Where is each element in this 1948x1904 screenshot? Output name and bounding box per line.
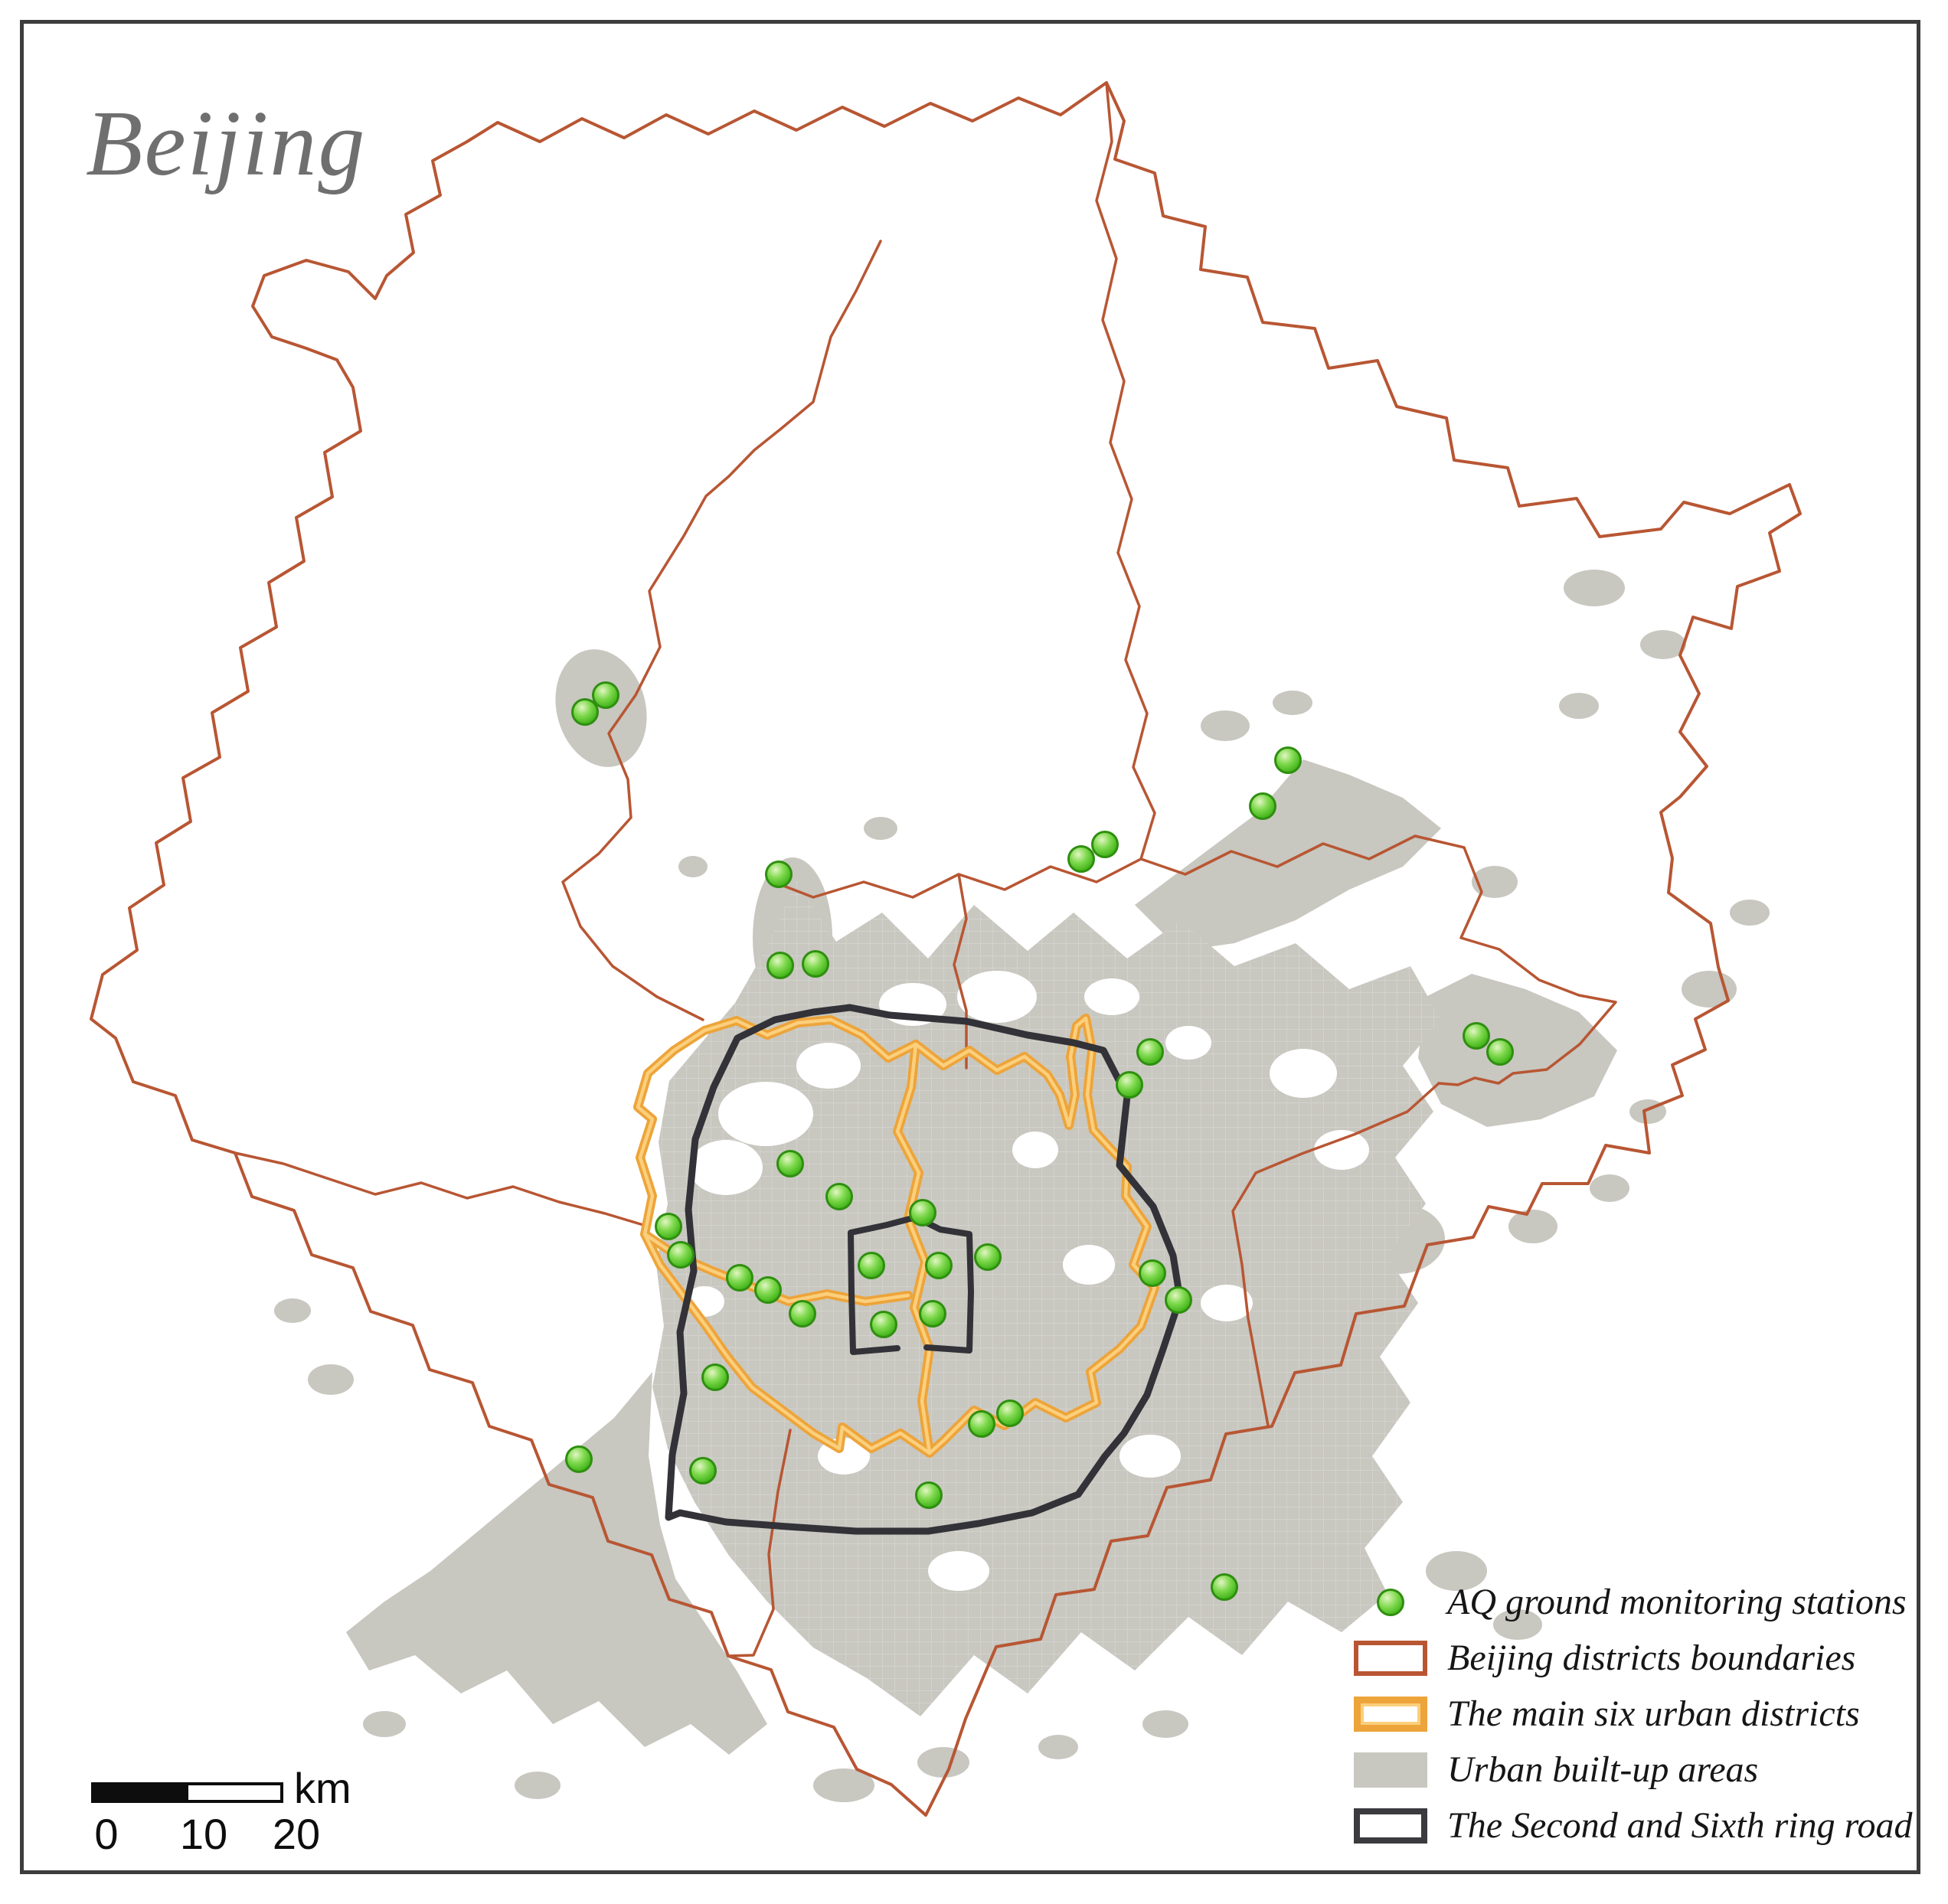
aq-station-dot bbox=[1276, 748, 1301, 773]
map-title: Beijing bbox=[86, 90, 366, 198]
aq-station-dot bbox=[859, 1253, 884, 1279]
aq-station-dot bbox=[917, 1483, 942, 1508]
aq-station-dot bbox=[1212, 1575, 1237, 1600]
legend-label: Beijing districts boundaries bbox=[1447, 1637, 1855, 1679]
aq-station-dot bbox=[573, 700, 598, 725]
legend-label: AQ ground monitoring stations bbox=[1447, 1581, 1907, 1623]
beijing-map-figure: Beijing AQ ground monitoring stations Be… bbox=[0, 0, 1948, 1904]
aq-station-dot bbox=[756, 1278, 781, 1303]
aq-station-dot bbox=[1250, 794, 1276, 819]
legend-label: Urban built-up areas bbox=[1447, 1749, 1758, 1791]
aq-station-dot bbox=[1166, 1288, 1191, 1313]
aq-station-dot bbox=[656, 1214, 681, 1239]
aq-station-dot bbox=[567, 1447, 592, 1472]
district-boundary-swatch bbox=[1354, 1641, 1427, 1676]
station-dot-icon bbox=[1377, 1589, 1404, 1616]
builtup-swatch bbox=[1354, 1752, 1427, 1788]
legend-item-urban-districts: The main six urban districts bbox=[1354, 1686, 1913, 1742]
aq-station-dot bbox=[871, 1312, 897, 1337]
aq-station-dot bbox=[766, 862, 792, 887]
aq-station-dot bbox=[910, 1200, 936, 1226]
aq-station-dot bbox=[1140, 1261, 1165, 1286]
legend-label: The Second and Sixth ring road bbox=[1447, 1804, 1913, 1847]
aq-station-dot bbox=[1488, 1040, 1513, 1065]
aq-station-dot bbox=[1117, 1073, 1142, 1098]
aq-station-dot bbox=[768, 953, 793, 978]
legend: AQ ground monitoring stations Beijing di… bbox=[1354, 1574, 1913, 1853]
aq-station-dot bbox=[1464, 1024, 1489, 1049]
aq-station-dot bbox=[1069, 847, 1094, 872]
scale-tick: 20 bbox=[273, 1809, 320, 1859]
scale-tick: 10 bbox=[180, 1809, 227, 1859]
scale-ticks: 0 10 20 bbox=[91, 1809, 413, 1855]
aq-station-dot bbox=[727, 1266, 753, 1291]
legend-item-ring-roads: The Second and Sixth ring road bbox=[1354, 1798, 1913, 1853]
legend-item-stations: AQ ground monitoring stations bbox=[1354, 1574, 1913, 1630]
aq-station-dot bbox=[920, 1301, 946, 1327]
aq-station-dot bbox=[976, 1245, 1001, 1270]
urban-districts-swatch bbox=[1354, 1697, 1427, 1732]
aq-station-dot bbox=[1138, 1040, 1163, 1065]
scale-segment-filled bbox=[91, 1782, 188, 1803]
legend-item-builtup: Urban built-up areas bbox=[1354, 1742, 1913, 1798]
scale-tick: 0 bbox=[94, 1809, 118, 1859]
scale-segment-open bbox=[188, 1782, 283, 1803]
aq-station-dot bbox=[969, 1412, 995, 1437]
aq-station-dot bbox=[668, 1243, 694, 1268]
aq-station-dot bbox=[790, 1301, 815, 1327]
aq-station-dot bbox=[927, 1253, 952, 1279]
aq-station-dot bbox=[778, 1151, 803, 1177]
aq-station-dot bbox=[1093, 832, 1118, 857]
aq-station-dot bbox=[998, 1401, 1023, 1426]
aq-station-dot bbox=[803, 952, 829, 977]
legend-label: The main six urban districts bbox=[1447, 1693, 1860, 1735]
ring-road-swatch bbox=[1354, 1808, 1427, 1844]
scale-bar: km 0 10 20 bbox=[91, 1782, 413, 1855]
aq-station-dot bbox=[593, 683, 619, 708]
aq-station-dot bbox=[691, 1458, 716, 1484]
legend-item-district-boundaries: Beijing districts boundaries bbox=[1354, 1630, 1913, 1686]
aq-station-dot bbox=[703, 1365, 728, 1390]
aq-station-dot bbox=[827, 1184, 852, 1210]
scale-unit: km bbox=[294, 1778, 351, 1798]
